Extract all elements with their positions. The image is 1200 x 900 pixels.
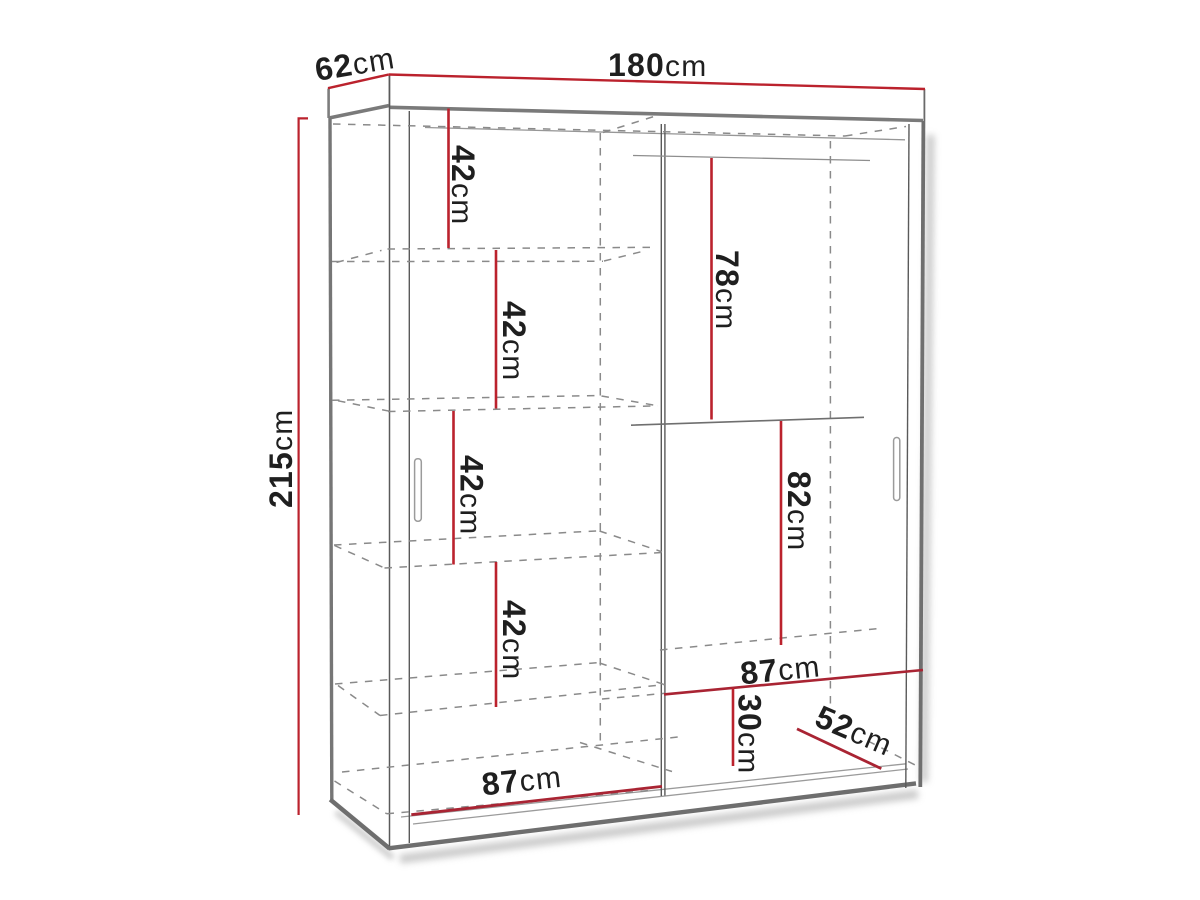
svg-text:42cm: 42cm <box>496 600 532 680</box>
svg-text:42cm: 42cm <box>496 301 532 381</box>
svg-text:215cm: 215cm <box>263 409 299 508</box>
svg-text:42cm: 42cm <box>445 145 481 225</box>
svg-text:180cm: 180cm <box>608 47 707 83</box>
svg-text:82cm: 82cm <box>781 471 817 551</box>
svg-text:78cm: 78cm <box>709 250 745 330</box>
svg-text:30cm: 30cm <box>732 694 768 774</box>
svg-text:42cm: 42cm <box>454 455 490 535</box>
